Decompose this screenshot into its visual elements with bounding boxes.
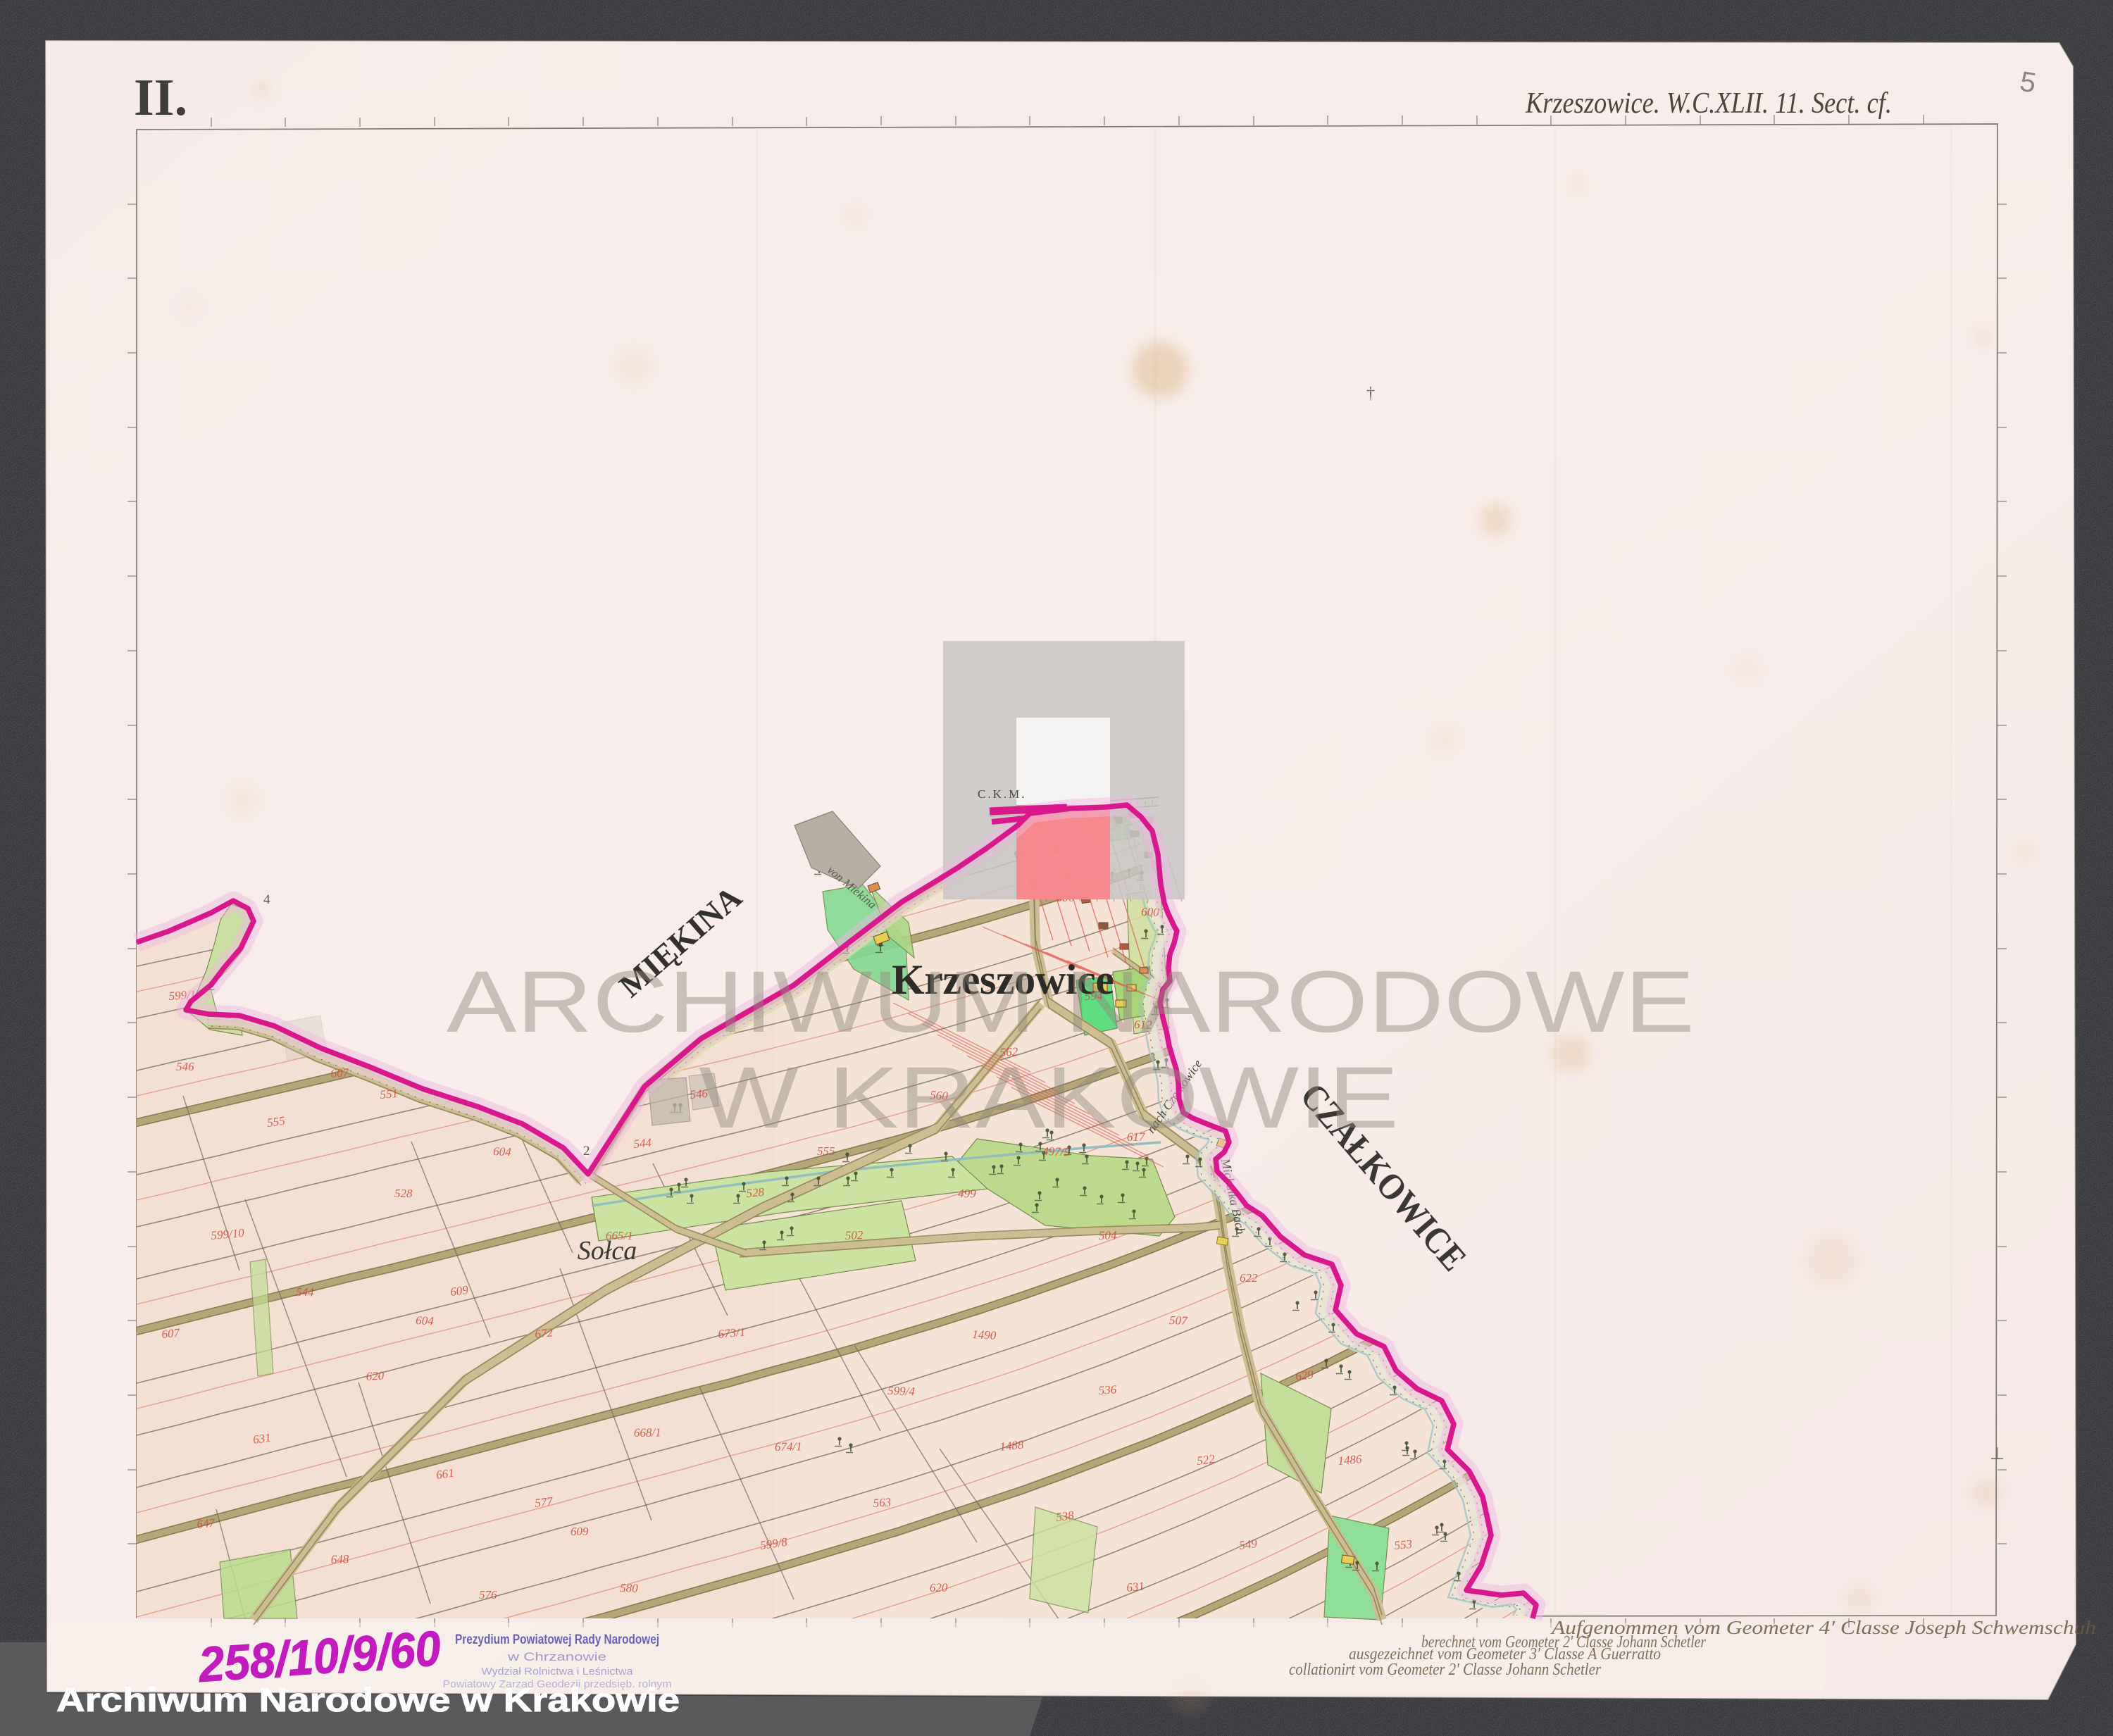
svg-text:497/5: 497/5 (1042, 1144, 1070, 1159)
svg-text:Sołca: Sołca (578, 1236, 637, 1266)
svg-text:†: † (1366, 385, 1375, 403)
svg-text:631: 631 (252, 1431, 272, 1447)
svg-text:577: 577 (534, 1494, 554, 1510)
svg-text:528: 528 (394, 1187, 413, 1200)
svg-text:549: 549 (1238, 1537, 1258, 1552)
svg-text:551: 551 (380, 1087, 399, 1101)
svg-text:C.K.M.: C.K.M. (978, 787, 1026, 801)
svg-text:Prezydium Powiatowej Rady Naro: Prezydium Powiatowej Rady Narodowej (455, 1632, 659, 1647)
svg-text:673/1: 673/1 (718, 1325, 746, 1341)
svg-text:544: 544 (296, 1285, 314, 1299)
svg-text:647: 647 (197, 1516, 217, 1531)
svg-text:629: 629 (1295, 1368, 1314, 1383)
svg-text:661: 661 (435, 1466, 455, 1482)
svg-text:604: 604 (416, 1313, 435, 1328)
svg-text:1490: 1490 (972, 1328, 997, 1342)
svg-text:668/1: 668/1 (634, 1425, 661, 1440)
svg-text:538: 538 (1055, 1509, 1075, 1524)
svg-text:609: 609 (449, 1283, 469, 1299)
svg-text:536: 536 (1098, 1382, 1117, 1397)
svg-text:499: 499 (958, 1187, 976, 1200)
svg-text:collationirt vom Geometer 2′ C: collationirt vom Geometer 2′ Classe Joha… (1289, 1661, 1602, 1679)
svg-text:622: 622 (1240, 1271, 1258, 1285)
svg-text:w Chrzanowie: w Chrzanowie (507, 1650, 606, 1663)
svg-text:620: 620 (366, 1369, 385, 1383)
svg-text:W KRAKOWIE: W KRAKOWIE (699, 1049, 1399, 1147)
svg-text:576: 576 (479, 1588, 497, 1601)
svg-text:553: 553 (1394, 1537, 1413, 1552)
svg-text:ARCHIWUM NARODOWE: ARCHIWUM NARODOWE (447, 954, 1695, 1051)
svg-text:1488: 1488 (999, 1437, 1024, 1454)
svg-text:609: 609 (571, 1525, 589, 1538)
svg-text:620: 620 (930, 1581, 948, 1594)
svg-text:672: 672 (534, 1325, 554, 1341)
svg-text:II.: II. (134, 69, 187, 127)
svg-text:4: 4 (263, 892, 270, 907)
svg-text:522: 522 (1196, 1452, 1216, 1468)
svg-text:631: 631 (1126, 1579, 1145, 1594)
svg-text:502: 502 (844, 1228, 864, 1242)
svg-text:599/4: 599/4 (887, 1384, 916, 1398)
svg-text:Wydział Rolnictwa i Leśnictwa: Wydział Rolnictwa i Leśnictwa (482, 1666, 634, 1678)
svg-text:528: 528 (746, 1185, 766, 1200)
svg-text:563: 563 (873, 1495, 892, 1510)
svg-text:555: 555 (266, 1114, 286, 1130)
svg-text:504: 504 (1099, 1229, 1117, 1242)
svg-text:607: 607 (161, 1326, 182, 1341)
svg-text:1486: 1486 (1338, 1452, 1363, 1468)
svg-text:507: 507 (1169, 1313, 1189, 1328)
svg-text:Krzeszowice. W.C.XLII. 11. Sec: Krzeszowice. W.C.XLII. 11. Sect. cf. (1525, 87, 1892, 120)
svg-text:546: 546 (176, 1060, 194, 1073)
svg-text:648: 648 (330, 1552, 349, 1566)
svg-text:544: 544 (633, 1136, 653, 1151)
svg-text:⊥: ⊥ (1990, 1445, 2005, 1463)
svg-text:674/1: 674/1 (775, 1440, 802, 1454)
svg-text:580: 580 (620, 1581, 639, 1595)
svg-text:Archiwum Narodowe w Krakowie: Archiwum Narodowe w Krakowie (56, 1681, 680, 1718)
svg-text:604: 604 (493, 1144, 512, 1159)
